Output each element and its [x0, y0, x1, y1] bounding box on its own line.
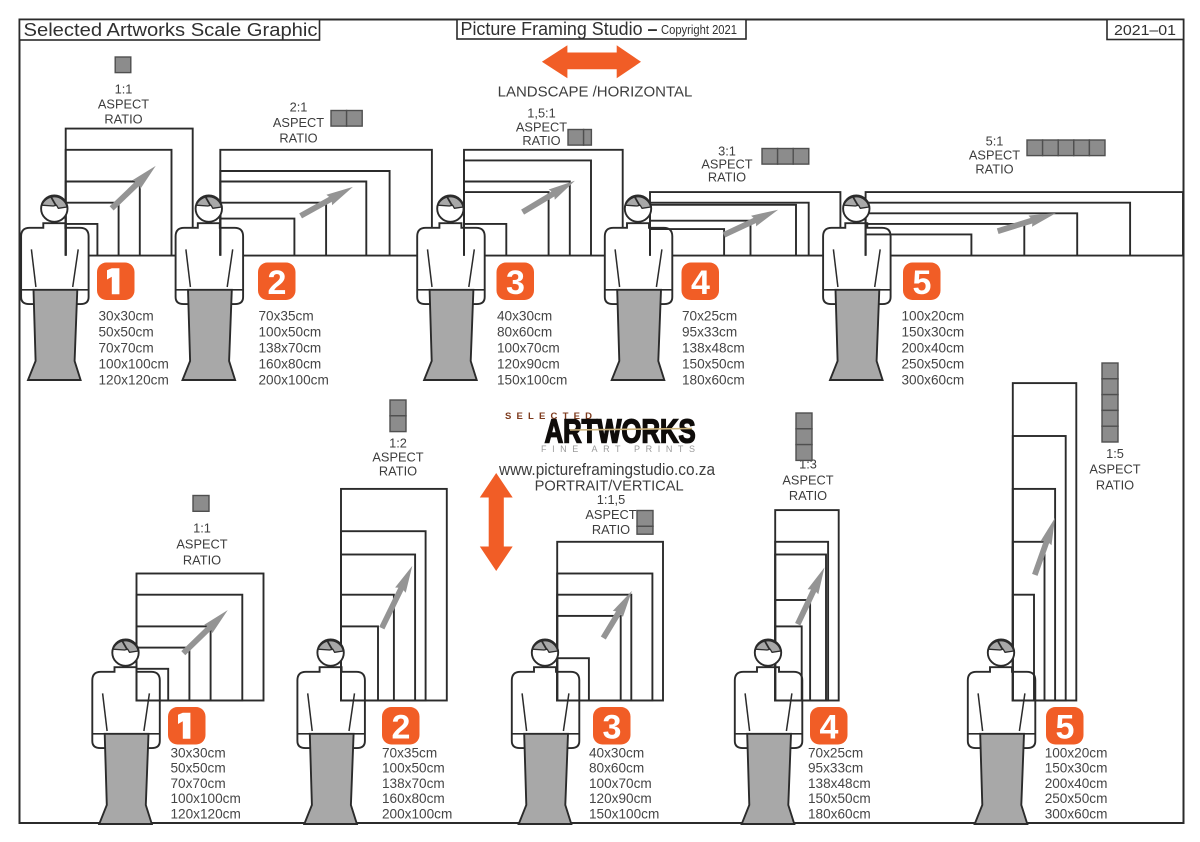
svg-text:RATIO: RATIO [104, 112, 142, 127]
svg-text:4: 4 [820, 709, 839, 747]
svg-text:150x100cm: 150x100cm [589, 807, 659, 822]
svg-text:1:5: 1:5 [1106, 446, 1124, 461]
svg-text:2021–01: 2021–01 [1114, 23, 1176, 39]
svg-text:138x70cm: 138x70cm [259, 340, 322, 355]
svg-text:200x40cm: 200x40cm [902, 340, 965, 355]
svg-text:ASPECT: ASPECT [372, 450, 423, 465]
svg-text:ASPECT: ASPECT [516, 119, 567, 134]
svg-text:250x50cm: 250x50cm [902, 356, 965, 371]
svg-text:2: 2 [392, 709, 411, 747]
svg-text:200x100cm: 200x100cm [382, 807, 452, 822]
svg-text:138x70cm: 138x70cm [382, 776, 445, 791]
svg-text:120x90cm: 120x90cm [589, 791, 652, 806]
svg-text:ASPECT: ASPECT [273, 115, 324, 130]
svg-text:100x50cm: 100x50cm [259, 324, 322, 339]
svg-text:40x30cm: 40x30cm [497, 308, 552, 323]
svg-text:FINE ART PRINTS: FINE ART PRINTS [541, 444, 695, 454]
svg-text:150x50cm: 150x50cm [808, 791, 871, 806]
svg-text:200x40cm: 200x40cm [1045, 776, 1108, 791]
svg-text:ASPECT: ASPECT [98, 97, 149, 112]
svg-text:2: 2 [268, 264, 287, 302]
svg-text:5:1: 5:1 [986, 134, 1004, 149]
svg-text:5: 5 [1056, 709, 1075, 747]
svg-text:3: 3 [603, 709, 622, 747]
svg-text:70x25cm: 70x25cm [808, 745, 863, 760]
svg-text:150x30cm: 150x30cm [1045, 761, 1108, 776]
svg-text:40x30cm: 40x30cm [589, 745, 644, 760]
svg-text:150x50cm: 150x50cm [682, 356, 745, 371]
svg-text:150x100cm: 150x100cm [497, 372, 567, 387]
svg-text:100x100cm: 100x100cm [99, 356, 169, 371]
svg-text:100x100cm: 100x100cm [171, 791, 241, 806]
svg-text:4: 4 [691, 264, 710, 302]
svg-text:1:2: 1:2 [389, 436, 407, 451]
svg-text:Copyright 2021: Copyright 2021 [661, 22, 737, 37]
svg-text:RATIO: RATIO [592, 522, 630, 537]
svg-text:100x70cm: 100x70cm [497, 340, 560, 355]
svg-text:138x48cm: 138x48cm [682, 340, 745, 355]
svg-text:120x90cm: 120x90cm [497, 356, 560, 371]
svg-text:1:1: 1:1 [115, 82, 133, 97]
svg-text:250x50cm: 250x50cm [1045, 791, 1108, 806]
svg-text:70x70cm: 70x70cm [99, 340, 154, 355]
svg-text:160x80cm: 160x80cm [382, 791, 445, 806]
svg-text:30x30cm: 30x30cm [171, 745, 226, 760]
svg-text:3: 3 [506, 264, 525, 302]
svg-text:1,5:1: 1,5:1 [527, 106, 555, 121]
svg-text:150x30cm: 150x30cm [902, 324, 965, 339]
svg-text:www.pictureframingstudio.co.za: www.pictureframingstudio.co.za [498, 461, 716, 479]
svg-text:1:1: 1:1 [193, 521, 211, 536]
svg-text:120x120cm: 120x120cm [171, 807, 241, 822]
svg-text:RATIO: RATIO [708, 170, 746, 185]
svg-text:70x70cm: 70x70cm [171, 776, 226, 791]
svg-text:70x25cm: 70x25cm [682, 308, 737, 323]
svg-text:RATIO: RATIO [279, 131, 317, 146]
svg-text:ASPECT: ASPECT [1089, 462, 1140, 477]
svg-text:180x60cm: 180x60cm [808, 807, 871, 822]
svg-text:RATIO: RATIO [1096, 477, 1134, 492]
svg-text:RATIO: RATIO [522, 133, 560, 148]
svg-text:70x35cm: 70x35cm [382, 745, 437, 760]
svg-text:30x30cm: 30x30cm [99, 308, 154, 323]
svg-text:70x35cm: 70x35cm [259, 308, 314, 323]
svg-text:300x60cm: 300x60cm [1045, 807, 1108, 822]
svg-text:138x48cm: 138x48cm [808, 776, 871, 791]
svg-text:180x60cm: 180x60cm [682, 372, 745, 387]
svg-text:100x50cm: 100x50cm [382, 761, 445, 776]
svg-text:50x50cm: 50x50cm [171, 761, 226, 776]
svg-text:50x50cm: 50x50cm [99, 324, 154, 339]
svg-text:300x60cm: 300x60cm [902, 372, 965, 387]
svg-text:RATIO: RATIO [789, 488, 827, 503]
svg-text:Picture Framing Studio –: Picture Framing Studio – [461, 18, 658, 39]
svg-text:100x20cm: 100x20cm [902, 308, 965, 323]
svg-text:ASPECT: ASPECT [585, 507, 636, 522]
svg-text:80x60cm: 80x60cm [497, 324, 552, 339]
svg-text:ASPECT: ASPECT [782, 472, 833, 487]
svg-text:LANDSCAPE /HORIZONTAL: LANDSCAPE /HORIZONTAL [498, 84, 693, 101]
svg-text:95x33cm: 95x33cm [808, 761, 863, 776]
svg-text:ASPECT: ASPECT [969, 148, 1020, 163]
svg-text:120x120cm: 120x120cm [99, 372, 169, 387]
svg-text:RATIO: RATIO [183, 553, 221, 568]
svg-text:RATIO: RATIO [975, 162, 1013, 177]
svg-text:100x70cm: 100x70cm [589, 776, 652, 791]
svg-text:100x20cm: 100x20cm [1045, 745, 1108, 760]
svg-text:RATIO: RATIO [379, 464, 417, 479]
svg-text:2:1: 2:1 [290, 100, 308, 115]
svg-text:80x60cm: 80x60cm [589, 761, 644, 776]
svg-text:Selected Artworks Scale Graphi: Selected Artworks Scale Graphic [24, 19, 318, 40]
svg-text:ASPECT: ASPECT [176, 537, 227, 552]
svg-text:1:1,5: 1:1,5 [597, 492, 625, 507]
svg-text:160x80cm: 160x80cm [259, 356, 322, 371]
svg-text:200x100cm: 200x100cm [259, 372, 329, 387]
svg-text:95x33cm: 95x33cm [682, 324, 737, 339]
svg-text:5: 5 [913, 264, 932, 302]
